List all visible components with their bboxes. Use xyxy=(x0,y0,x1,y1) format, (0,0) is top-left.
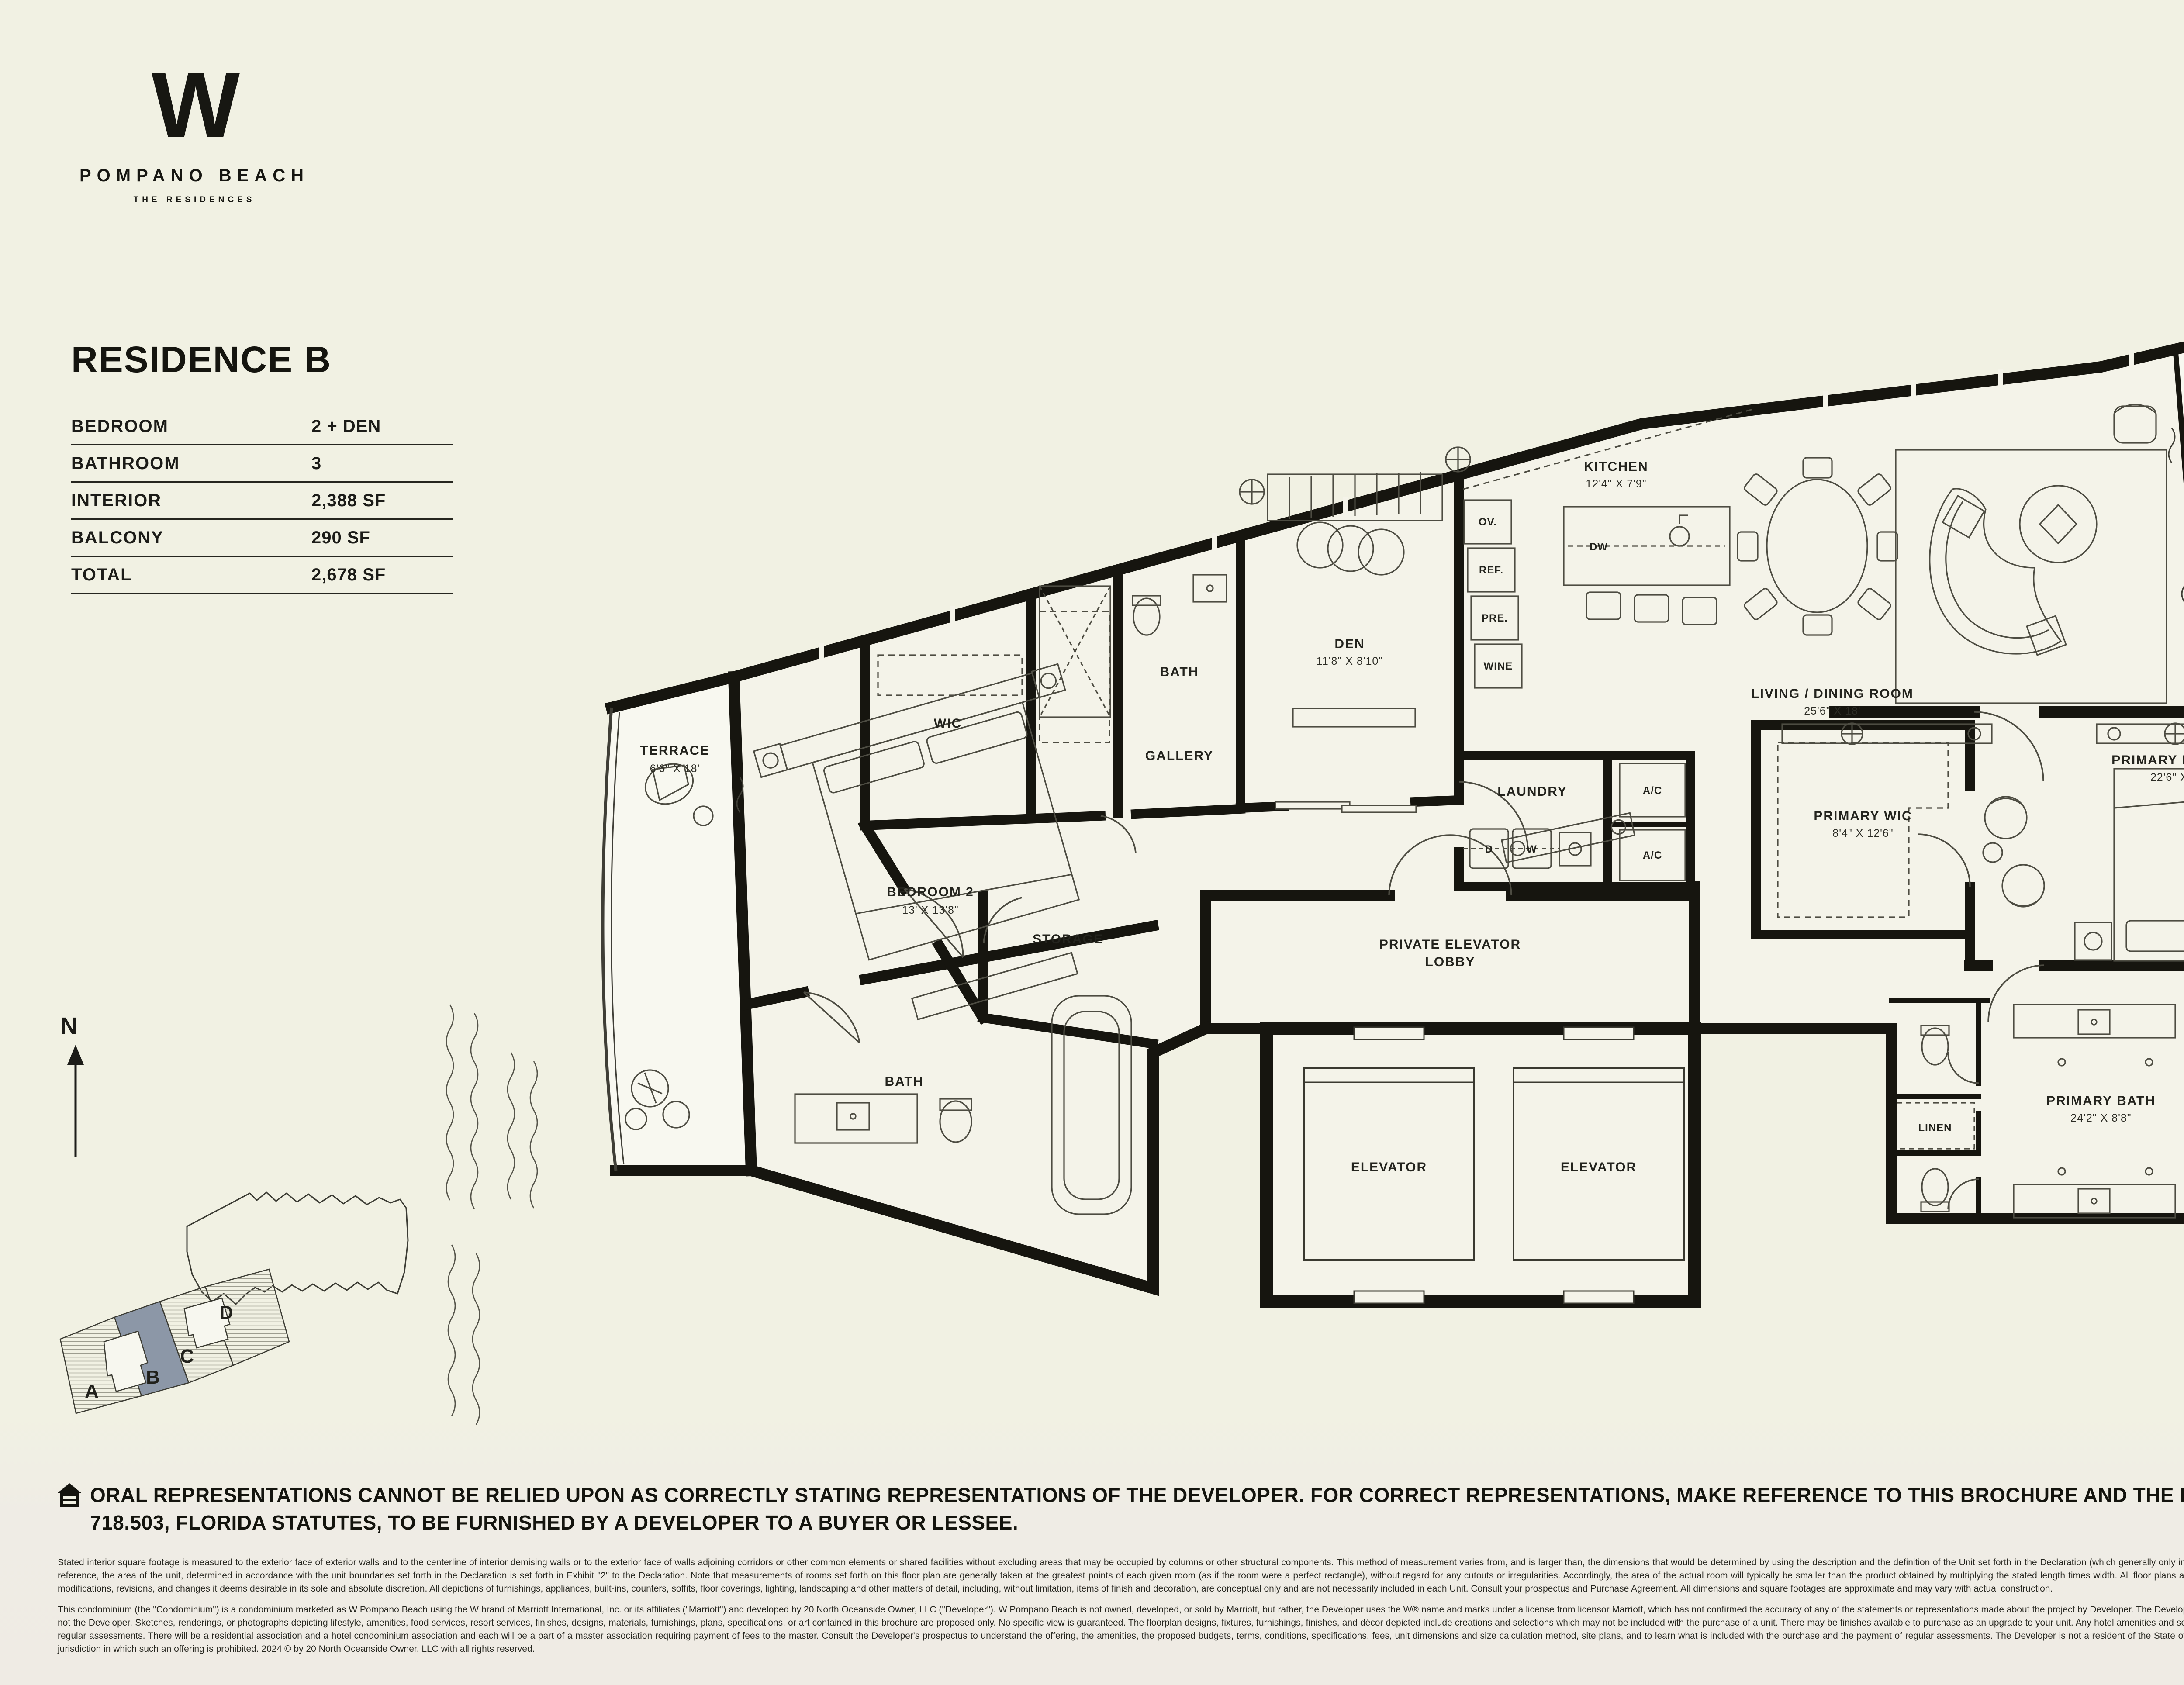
disclaimer-headline: ORAL REPRESENTATIONS CANNOT BE RELIED UP… xyxy=(57,1481,2184,1537)
spec-value: 2,388 SF xyxy=(311,491,386,511)
dishwasher-label: DW xyxy=(1590,541,1608,553)
spec-row-total: TOTAL 2,678 SF xyxy=(71,557,453,594)
brand-tagline: THE RESIDENCES xyxy=(63,195,325,205)
spec-value: 290 SF xyxy=(311,528,370,548)
spec-table: BEDROOM 2 + DEN BATHROOM 3 INTERIOR 2,38… xyxy=(71,408,453,594)
wic-label: WIC xyxy=(934,716,962,731)
spec-label: BALCONY xyxy=(71,528,311,548)
primary-bath-label: PRIMARY BATH xyxy=(2046,1094,2156,1108)
key-plan-unit-c-label: C xyxy=(180,1346,194,1367)
spec-label: TOTAL xyxy=(71,565,311,585)
bedroom2-dims: 13' X 13'8" xyxy=(902,904,959,916)
living-dining-label: LIVING / DINING ROOM xyxy=(1751,687,1914,701)
kitchen-dims: 12'4" X 7'9" xyxy=(1586,478,1646,490)
spec-row-interior: INTERIOR 2,388 SF xyxy=(71,483,453,520)
terrace-left-dims: 6'6" X 18' xyxy=(650,763,700,775)
spec-row-balcony: BALCONY 290 SF xyxy=(71,520,453,557)
spec-value: 2,678 SF xyxy=(311,565,386,585)
brand-name: POMPANO BEACH xyxy=(63,166,325,186)
spec-label: BATHROOM xyxy=(71,454,311,473)
lobby-label-line1: PRIVATE ELEVATOR xyxy=(1379,937,1521,952)
spec-label: INTERIOR xyxy=(71,491,311,511)
spec-label: BEDROOM xyxy=(71,417,311,436)
primary-bath-dims: 24'2" X 8'8" xyxy=(2070,1112,2131,1124)
oven-label: OV. xyxy=(1479,516,1497,528)
fine-print-paragraph-2: This condominium (the "Condominium") is … xyxy=(58,1603,2184,1656)
terrace-left-label: TERRACE xyxy=(640,743,709,758)
floor-plan: TERRACE 6'6" X 18' BEDROOM 2 13' X 13'8"… xyxy=(559,262,2184,1332)
ac1-label: A/C xyxy=(1643,785,1662,797)
brand-logo: W POMPANO BEACH THE RESIDENCES xyxy=(63,61,325,205)
disclaimer-headline-text: ORAL REPRESENTATIONS CANNOT BE RELIED UP… xyxy=(90,1484,2184,1534)
linen-label: LINEN xyxy=(1918,1122,1952,1134)
equal-housing-icon xyxy=(57,1482,82,1515)
elevator1-label: ELEVATOR xyxy=(1351,1160,1427,1174)
bedroom2-label: BEDROOM 2 xyxy=(887,885,974,899)
kitchen-label: KITCHEN xyxy=(1584,459,1648,474)
primary-bedroom-dims: 22'6" X 13'6" xyxy=(2150,771,2184,784)
pantry-label: PRE. xyxy=(1482,612,1508,624)
elevator2-label: ELEVATOR xyxy=(1561,1160,1637,1174)
den-dims: 11'8" X 8'10" xyxy=(1317,655,1383,667)
living-dining-dims: 25'6" X 18' xyxy=(1804,705,1861,717)
den-bath-label: BATH xyxy=(1160,665,1199,679)
spec-row-bathroom: BATHROOM 3 xyxy=(71,445,453,483)
primary-wic-dims: 8'4" X 12'6" xyxy=(1832,827,1893,839)
spec-row-bedroom: BEDROOM 2 + DEN xyxy=(71,408,453,445)
key-plan-unit-d-label: D xyxy=(219,1302,233,1323)
page-title: RESIDENCE B xyxy=(71,338,332,381)
primary-bedroom-label: PRIMARY BEDROOM xyxy=(2111,753,2184,767)
north-arrow-icon xyxy=(61,1044,92,1166)
spec-value: 3 xyxy=(311,454,321,473)
primary-wic-label: PRIMARY WIC xyxy=(1814,809,1912,823)
fridge-label: REF. xyxy=(1479,564,1503,576)
w-logo-mark: W xyxy=(63,61,325,148)
key-plan: A B C D xyxy=(48,1171,432,1433)
spec-value: 2 + DEN xyxy=(311,417,381,436)
wine-label: WINE xyxy=(1484,660,1513,672)
lobby-label-line2: LOBBY xyxy=(1425,955,1476,969)
storage-label: STORAGE xyxy=(1033,932,1103,946)
bath2-label: BATH xyxy=(885,1074,923,1089)
washer-label: W xyxy=(1527,843,1537,855)
key-plan-unit-a-label: A xyxy=(85,1381,99,1402)
fine-print-paragraph-1: Stated interior square footage is measur… xyxy=(58,1556,2184,1595)
key-plan-unit-b-label: B xyxy=(146,1367,160,1388)
gallery-label: GALLERY xyxy=(1145,749,1213,763)
den-label: DEN xyxy=(1334,637,1365,651)
brochure-page: W POMPANO BEACH THE RESIDENCES RESIDENCE… xyxy=(0,0,2184,1685)
dryer-label: D xyxy=(1485,843,1493,855)
waves-left-icon xyxy=(437,1000,550,1441)
ac2-label: A/C xyxy=(1643,849,1662,861)
north-label: N xyxy=(60,1012,77,1039)
laundry-label: LAUNDRY xyxy=(1497,784,1567,799)
